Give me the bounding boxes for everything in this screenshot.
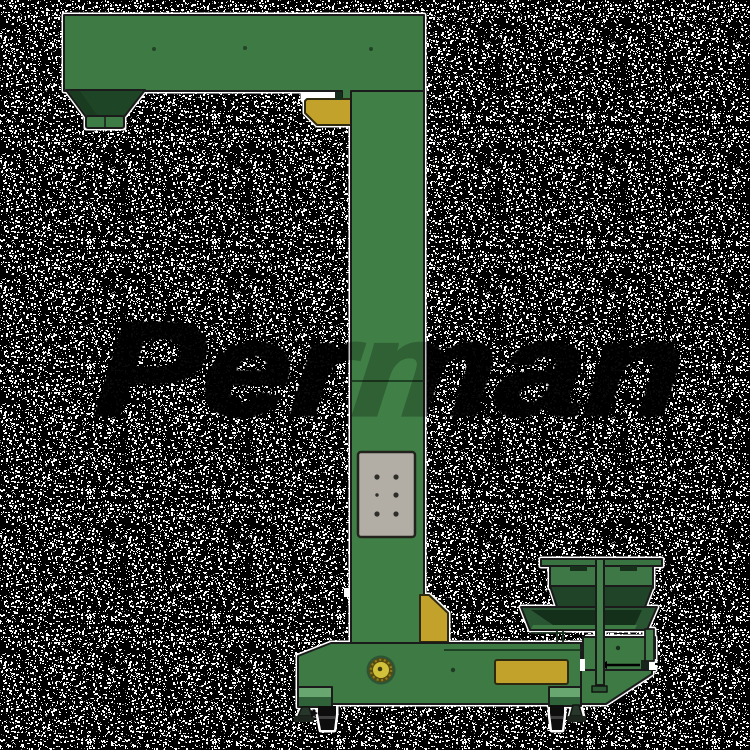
svg-text:Perman: Perman bbox=[91, 295, 690, 444]
